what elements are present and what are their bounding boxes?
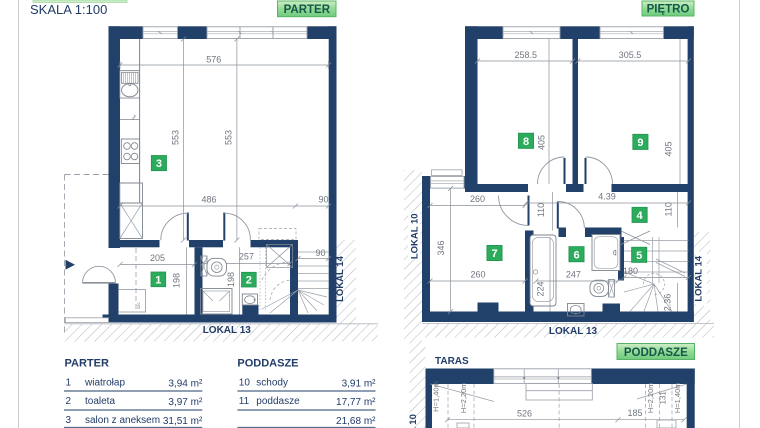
- svg-text:260: 260: [470, 194, 485, 204]
- svg-text:31,51 m²: 31,51 m²: [163, 416, 203, 427]
- svg-text:wiatrołap: wiatrołap: [84, 378, 125, 389]
- svg-text:1: 1: [66, 378, 72, 389]
- svg-text:7: 7: [491, 248, 497, 260]
- svg-text:8: 8: [523, 136, 529, 148]
- svg-text:260: 260: [470, 270, 485, 280]
- svg-text:90: 90: [315, 248, 325, 258]
- svg-text:198: 198: [226, 272, 236, 287]
- svg-text:110: 110: [536, 203, 546, 217]
- svg-text:205: 205: [150, 253, 165, 263]
- svg-text:11: 11: [239, 396, 250, 407]
- svg-text:21,68 m²: 21,68 m²: [336, 416, 376, 427]
- svg-text:4: 4: [637, 210, 644, 222]
- svg-text:2: 2: [66, 396, 72, 407]
- svg-text:PODDASZE: PODDASZE: [624, 347, 688, 359]
- svg-text:3: 3: [66, 415, 72, 426]
- svg-text:6: 6: [573, 249, 579, 261]
- svg-text:H=2,20m: H=2,20m: [646, 382, 655, 413]
- svg-text:3,94 m²: 3,94 m²: [168, 379, 203, 390]
- svg-text:257: 257: [239, 252, 254, 262]
- svg-text:5: 5: [636, 250, 642, 262]
- svg-text:3,97 m²: 3,97 m²: [168, 397, 203, 408]
- svg-text:2: 2: [246, 275, 252, 287]
- svg-text:salon z aneksem: salon z aneksem: [85, 415, 160, 426]
- svg-text:1: 1: [155, 274, 161, 286]
- svg-text:247: 247: [566, 270, 581, 280]
- svg-text:szc: szc: [136, 302, 141, 310]
- svg-text:9: 9: [637, 137, 643, 149]
- svg-text:LOKAL 10: LOKAL 10: [410, 213, 421, 259]
- svg-text:poddasze: poddasze: [256, 396, 300, 407]
- svg-text:schody: schody: [256, 378, 288, 389]
- svg-text:4.39: 4.39: [598, 192, 616, 202]
- svg-text:TARAS: TARAS: [435, 356, 469, 367]
- svg-text:526: 526: [517, 409, 532, 419]
- svg-text:405: 405: [664, 141, 674, 156]
- svg-text:SKALA 1:100: SKALA 1:100: [30, 2, 107, 17]
- svg-text:405: 405: [536, 135, 546, 150]
- svg-text:90: 90: [318, 195, 328, 205]
- svg-text:PIĘTRO: PIĘTRO: [647, 4, 690, 16]
- svg-text:180: 180: [623, 266, 638, 276]
- svg-text:346: 346: [436, 240, 446, 255]
- svg-text:LOKAL 13: LOKAL 13: [203, 325, 252, 336]
- svg-text:553: 553: [171, 130, 181, 145]
- svg-text:224: 224: [536, 281, 546, 296]
- svg-text:2.36: 2.36: [663, 294, 673, 312]
- svg-text:576: 576: [206, 55, 221, 65]
- svg-text:LOKAL 10: LOKAL 10: [408, 414, 419, 428]
- svg-text:3,91 m²: 3,91 m²: [342, 379, 377, 390]
- svg-text:131: 131: [659, 391, 668, 405]
- svg-text:PARTER: PARTER: [284, 4, 331, 16]
- svg-text:10: 10: [239, 378, 251, 389]
- svg-text:486: 486: [201, 195, 216, 205]
- svg-text:110: 110: [664, 202, 674, 216]
- svg-text:LOKAL 14: LOKAL 14: [694, 255, 705, 301]
- svg-text:toaleta: toaleta: [85, 396, 115, 407]
- svg-text:PODDASZE: PODDASZE: [237, 358, 298, 370]
- svg-text:LOKAL 13: LOKAL 13: [549, 326, 598, 337]
- svg-text:LOKAL 14: LOKAL 14: [335, 255, 346, 301]
- svg-text:185: 185: [627, 408, 642, 418]
- svg-text:3: 3: [156, 158, 162, 170]
- svg-text:PARTER: PARTER: [65, 358, 109, 370]
- svg-text:258.5: 258.5: [515, 50, 538, 60]
- svg-text:H=1,40m: H=1,40m: [432, 381, 441, 412]
- svg-text:17,77 m²: 17,77 m²: [336, 397, 376, 408]
- svg-text:553: 553: [224, 130, 234, 145]
- svg-text:H=2,20m: H=2,20m: [459, 382, 468, 413]
- svg-text:198: 198: [172, 273, 182, 288]
- svg-text:305.5: 305.5: [619, 50, 642, 60]
- svg-text:H=1,40m: H=1,40m: [673, 382, 682, 413]
